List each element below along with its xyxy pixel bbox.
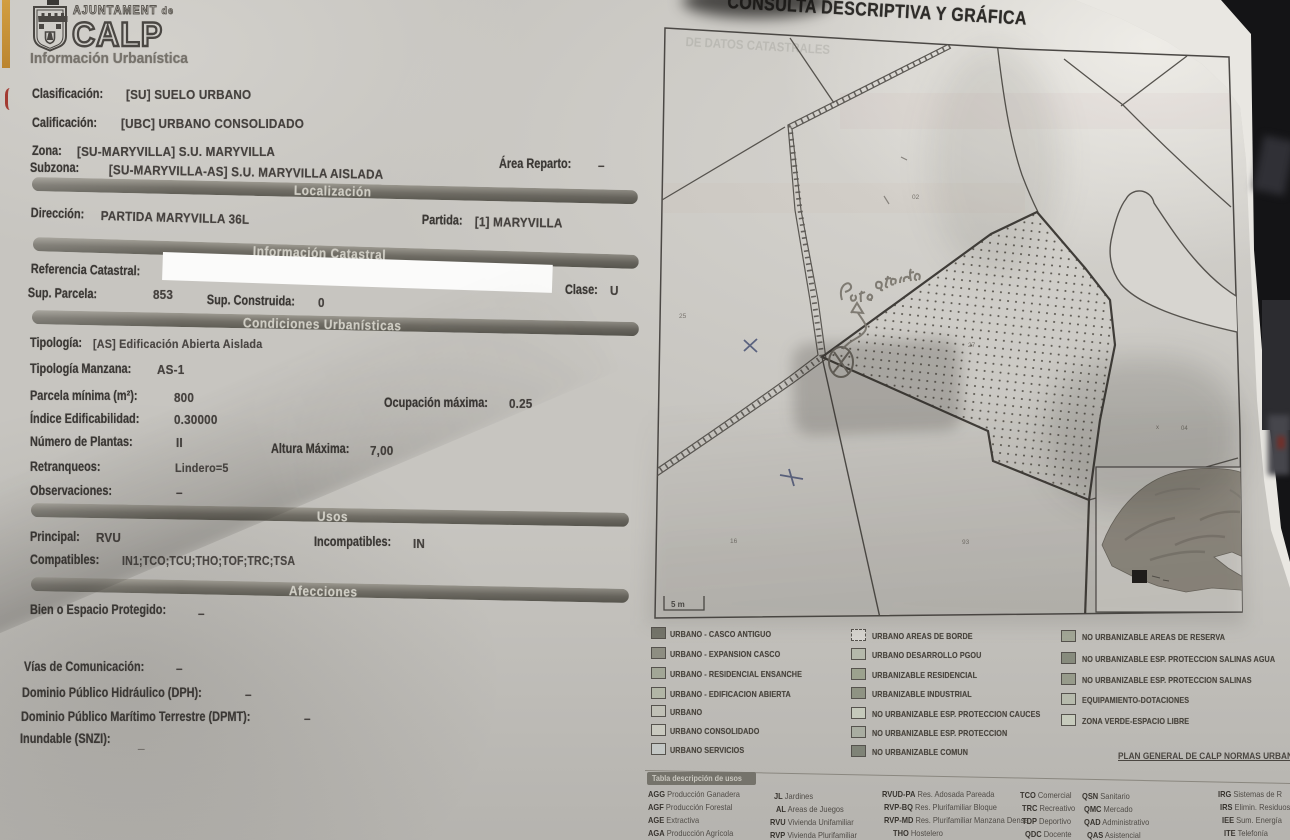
svg-text:27: 27 — [968, 342, 976, 349]
svg-text:25: 25 — [679, 313, 687, 320]
svg-text:04: 04 — [1181, 426, 1188, 432]
svg-text:02: 02 — [912, 194, 920, 201]
svg-text:16: 16 — [730, 538, 738, 545]
svg-text:x: x — [1156, 425, 1159, 431]
svg-text:5 m: 5 m — [671, 600, 685, 609]
svg-text:93: 93 — [962, 539, 970, 546]
